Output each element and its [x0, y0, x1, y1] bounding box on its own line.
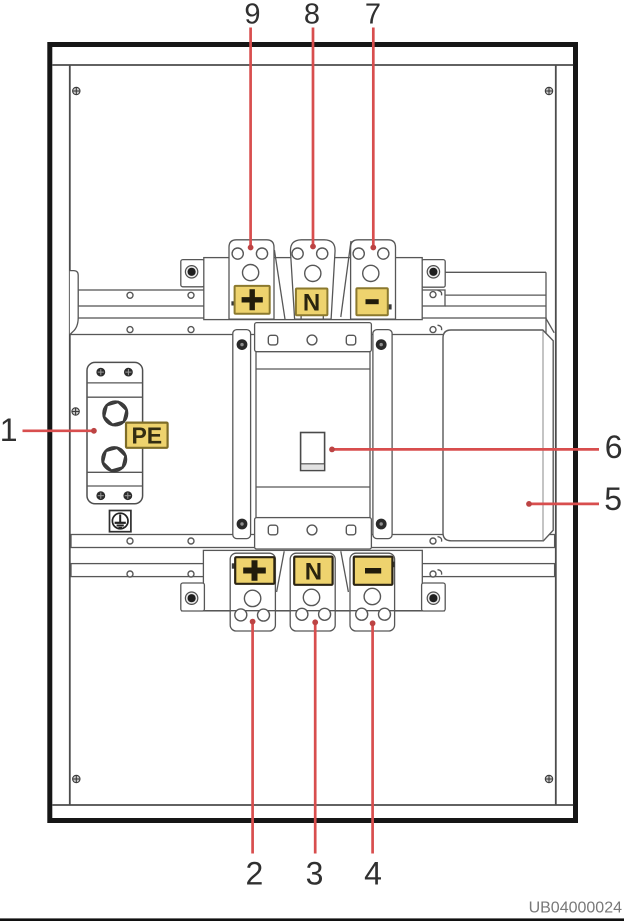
svg-text:6: 6 [605, 429, 623, 465]
svg-text:2: 2 [246, 856, 264, 892]
svg-text:PE: PE [131, 423, 162, 449]
svg-text:3: 3 [306, 856, 324, 892]
svg-text:1: 1 [0, 412, 17, 448]
svg-text:N: N [303, 290, 320, 317]
svg-text:9: 9 [244, 0, 260, 30]
svg-text:UB04000024: UB04000024 [529, 900, 623, 917]
svg-text:7: 7 [365, 0, 381, 30]
svg-text:4: 4 [364, 856, 382, 892]
svg-text:N: N [305, 559, 322, 586]
svg-text:5: 5 [604, 481, 622, 517]
svg-text:8: 8 [304, 0, 320, 30]
